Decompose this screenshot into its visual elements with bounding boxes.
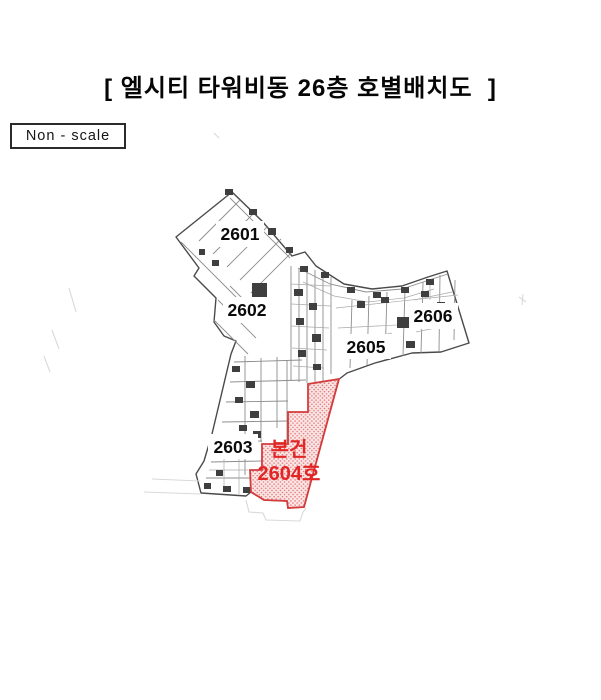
- document-page: [ 엘시티 타워비동 26층 호별배치도 ] Non - scale: [0, 0, 601, 700]
- unit-label-2605: 2605: [347, 337, 386, 357]
- unit-label-2606: 2606: [414, 306, 453, 326]
- subject-number-label: 2604호: [258, 462, 321, 485]
- unit-label-2602: 2602: [228, 300, 267, 320]
- floor-plan-drawing: 2601 2602 2603 2605 2606 본건 2604호: [0, 0, 601, 700]
- unit-label-2601: 2601: [221, 224, 260, 244]
- subject-tag-label: 본건: [271, 438, 308, 461]
- unit-label-2603: 2603: [214, 437, 253, 457]
